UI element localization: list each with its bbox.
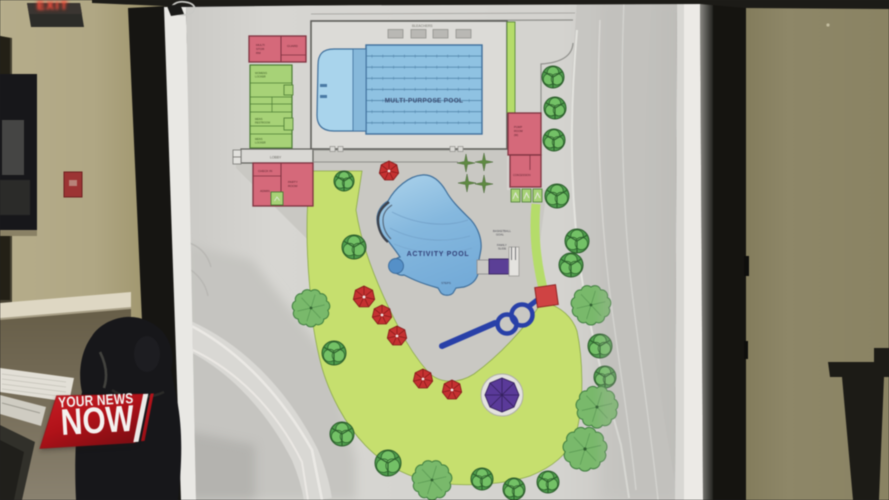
svg-text:RESTROOM: RESTROOM bbox=[255, 121, 270, 125]
svg-text:LOCKER: LOCKER bbox=[255, 141, 266, 145]
svg-text:MENS: MENS bbox=[255, 117, 263, 121]
svg-text:GOAL: GOAL bbox=[496, 233, 504, 237]
svg-text:NOW: NOW bbox=[60, 399, 136, 444]
svg-text:LOBBY: LOBBY bbox=[270, 156, 282, 160]
svg-text:GUARD: GUARD bbox=[287, 44, 299, 48]
svg-text:CHECK IN: CHECK IN bbox=[258, 169, 272, 173]
svg-text:ADMIN: ADMIN bbox=[260, 189, 270, 193]
svg-text:(M): (M) bbox=[514, 133, 518, 137]
svg-text:MENS: MENS bbox=[255, 137, 263, 141]
svg-text:EXIT: EXIT bbox=[37, 1, 69, 13]
svg-text:MULTI-PURPOSE POOL: MULTI-PURPOSE POOL bbox=[385, 98, 464, 105]
svg-text:STEPS: STEPS bbox=[441, 281, 451, 285]
svg-text:RM: RM bbox=[256, 51, 261, 55]
svg-text:CONCESSION: CONCESSION bbox=[513, 173, 531, 177]
svg-text:ACTIVITY POOL: ACTIVITY POOL bbox=[407, 251, 470, 258]
svg-text:SLIDE: SLIDE bbox=[498, 247, 506, 251]
svg-text:ROOM: ROOM bbox=[288, 184, 298, 188]
svg-text:BLEACHERS: BLEACHERS bbox=[412, 24, 433, 28]
svg-text:LOCKER: LOCKER bbox=[255, 75, 266, 79]
svg-text:WOMENS: WOMENS bbox=[255, 71, 267, 75]
